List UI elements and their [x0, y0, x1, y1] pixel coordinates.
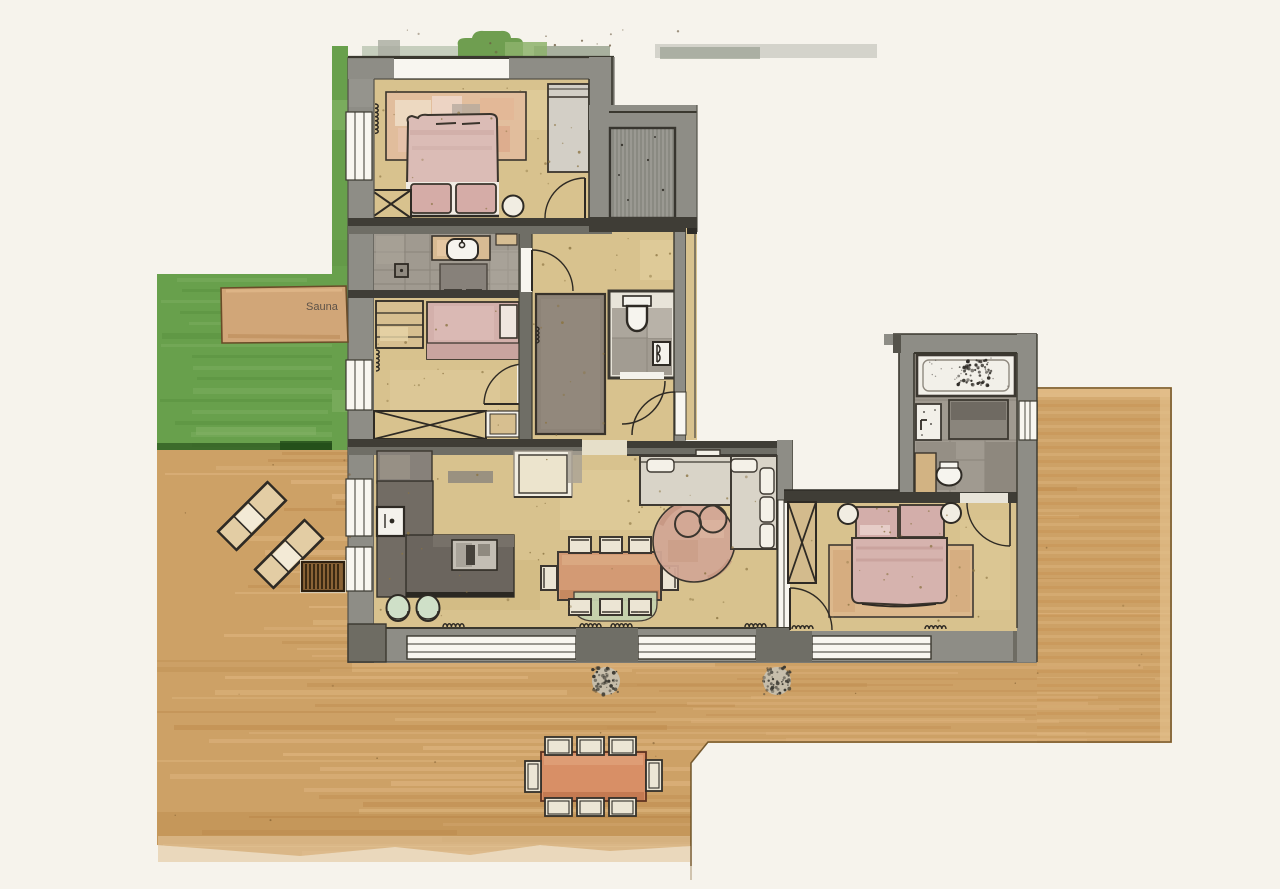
svg-text:Sauna: Sauna	[306, 301, 339, 313]
